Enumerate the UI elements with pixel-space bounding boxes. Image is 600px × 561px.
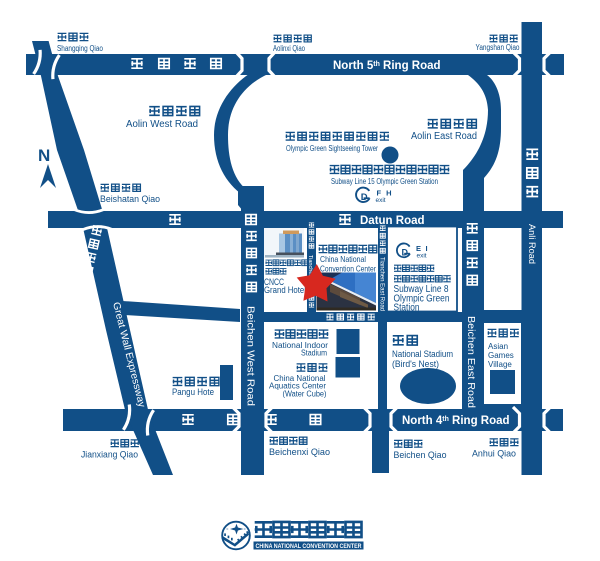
svg-text:Beichen East Road: Beichen East Road [465,316,476,408]
svg-text:North 4th Ring Road: North 4th Ring Road [402,415,510,427]
svg-text:Beishatan Qiao: Beishatan Qiao [100,194,160,204]
svg-text:Grand Hotel: Grand Hotel [264,285,306,295]
svg-text:Beichenxi Qiao: Beichenxi Qiao [269,447,330,458]
svg-text:Aolin East Road: Aolin East Road [411,131,477,142]
svg-text:Stadium: Stadium [301,349,327,358]
svg-text:CHINA NATIONAL CONVENTION CENT: CHINA NATIONAL CONVENTION CENTER [256,544,363,550]
svg-text:Olympic Green Sightseeing Towe: Olympic Green Sightseeing Tower [286,144,378,153]
svg-text:exit: exit [376,197,386,204]
svg-text:D: D [401,247,408,257]
svg-text:Aolinxi Qiao: Aolinxi Qiao [273,44,305,53]
svg-text:Shangqing Qiao: Shangqing Qiao [57,44,103,53]
svg-text:D: D [361,192,368,203]
svg-text:Beichen West Road: Beichen West Road [245,306,257,406]
svg-text:Asian: Asian [488,342,508,351]
svg-text:National Stadium: National Stadium [392,349,453,359]
svg-text:China National: China National [320,254,366,264]
svg-text:Yangshan Qiao: Yangshan Qiao [476,43,520,52]
svg-text:N: N [38,146,50,165]
svg-text:Station: Station [394,303,420,314]
svg-text:Village: Village [488,360,512,369]
svg-text:Jianxiang Qiao: Jianxiang Qiao [81,450,138,460]
svg-text:Subway Line 15 Olympic Green S: Subway Line 15 Olympic Green Station [331,177,438,186]
svg-text:(Bird's Nest): (Bird's Nest) [392,359,439,369]
svg-text:Datun Road: Datun Road [360,215,425,227]
svg-text:Pangu Hote: Pangu Hote [172,387,214,397]
svg-text:Convention Center: Convention Center [320,264,376,274]
svg-text:Beichen Qiao: Beichen Qiao [394,450,447,461]
svg-text:North 5th Ring Road: North 5th Ring Road [333,60,441,72]
svg-text:Aolin West Road: Aolin West Road [126,119,198,130]
svg-text:Anhui Qiao: Anhui Qiao [472,449,516,460]
svg-text:(Water Cube): (Water Cube) [283,390,327,399]
svg-text:exit: exit [417,253,427,260]
svg-text:Games: Games [488,351,514,360]
svg-text:Tianchen East Road: Tianchen East Road [379,257,385,311]
svg-text:Anli Road: Anli Road [527,224,537,264]
